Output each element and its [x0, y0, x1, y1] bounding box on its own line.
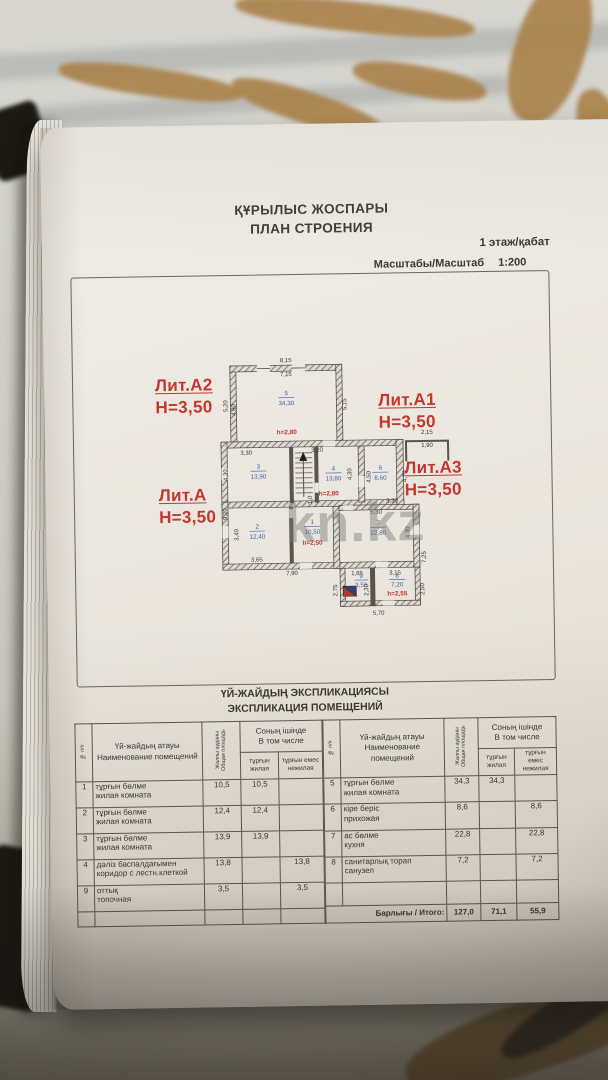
- table-row: 8 санитарлық торапсанузел 7,27,2: [325, 853, 558, 883]
- dim-label: 4,30: [223, 469, 229, 481]
- room-number: 6: [379, 465, 383, 472]
- dim-label: 7,15: [280, 372, 292, 378]
- room-number: 4: [332, 465, 336, 472]
- room-number: 8: [395, 572, 399, 579]
- height-label: h=2,80: [277, 429, 298, 436]
- room-area: 7,20: [391, 581, 404, 588]
- col-header-total: Жалпы ауданыОбщая площадь: [202, 721, 241, 780]
- room-area: 34,30: [278, 400, 294, 407]
- explication-title: ҮЙ-ЖАЙДЫҢ ЭКСПЛИКАЦИЯСЫ ЭКСПЛИКАЦИЯ ПОМЕ…: [135, 683, 475, 717]
- watermark: kn.kz: [235, 490, 476, 556]
- dim-label: 4,30: [347, 468, 353, 480]
- table-row: 5 тұрғын бөлмежилая комната 34,334,3: [324, 775, 557, 805]
- dim-label: 4,50: [366, 470, 372, 482]
- table-row: 7 ас бөлмекухня 22,822,8: [325, 827, 558, 857]
- table-row: 2 тұрғын бөлмежилая комната 12,412,4: [76, 804, 323, 834]
- scale-value: 1:200: [498, 256, 544, 269]
- explication-table: № п/п Үй-жайдың атауыНаименование помеще…: [74, 716, 559, 928]
- dim-label: 5,20: [223, 400, 229, 412]
- explication-table-right: № п/п Үй-жайдың атауыНаименование помеще…: [322, 716, 559, 924]
- height-label: h=2,55: [387, 590, 408, 597]
- col-header-num: № п/п: [75, 724, 93, 782]
- dim-label: 1,90: [421, 443, 433, 449]
- dim-label: 5,70: [373, 611, 385, 617]
- floor-label: 1 этаж/қабат: [392, 236, 550, 250]
- dim-label: 8,15: [280, 358, 292, 364]
- total-label: Барлығы / Итого:: [326, 904, 447, 923]
- col-header-including: Соның ішіндеВ том числе: [478, 716, 556, 748]
- dim-label: 2,50: [420, 582, 426, 594]
- document-page: ҚҰРЫЛЫС ЖОСПАРЫ ПЛАН СТРОЕНИЯ 1 этаж/қаб…: [40, 119, 608, 1010]
- dim-label: 4,80: [231, 403, 237, 415]
- col-header-name: Үй-жайдың атауыНаименование помещений: [340, 718, 445, 778]
- room-area: 13,80: [326, 475, 342, 482]
- room-area: 3,50: [355, 582, 368, 589]
- col-header-living: тұрғынжилая: [240, 752, 278, 780]
- table-total-row: Барлығы / Итого: 127,0 71,1 55,9: [326, 902, 559, 923]
- room-number: 9: [359, 573, 363, 580]
- photo-background: ҚҰРЫЛЫС ЖОСПАРЫ ПЛАН СТРОЕНИЯ 1 этаж/қаб…: [0, 0, 608, 1080]
- col-header-living: тұрғынжилая: [478, 748, 514, 776]
- col-header-nonliving: тұрғын емеснежилая: [514, 748, 556, 776]
- lit-label-a2: Лит.А2 Н=3,50: [155, 374, 213, 419]
- total-nonliving: 55,9: [517, 902, 559, 920]
- explication-table-left: № п/п Үй-жайдың атауыНаименование помеще…: [74, 720, 325, 928]
- table-row: 1 тұрғын бөлмежилая комната 10,510,5: [76, 778, 323, 808]
- dim-label: 7,90: [286, 571, 298, 577]
- col-header-nonliving: тұрғын емеснежилая: [278, 751, 322, 779]
- dim-label: 3,65: [251, 558, 263, 564]
- document-title: ҚҰРЫЛЫС ЖОСПАРЫ ПЛАН СТРОЕНИЯ: [111, 197, 512, 241]
- dim-label: 5,15: [342, 398, 348, 410]
- table-row: 4 дәліз баспалдағыменкоридор с лестн.кле…: [77, 856, 324, 886]
- table-row: 9 оттықтопочная 3,53,5: [77, 882, 324, 912]
- dim-label: 9,20: [223, 508, 229, 520]
- col-header-num: № п/п: [323, 720, 341, 779]
- dim-label: 2,75: [333, 584, 339, 596]
- room-number: 5: [284, 390, 288, 397]
- lit-label-a1: Лит.А1 Н=3,50: [378, 389, 436, 434]
- room-area: 8,60: [374, 475, 387, 482]
- lit-label-a: Лит.А Н=3,50: [159, 484, 217, 529]
- room-area: 13,90: [251, 473, 267, 480]
- table-row: 3 тұрғын бөлмежилая комната 13,913,9: [77, 830, 324, 860]
- room-number: 3: [257, 464, 261, 471]
- dim-label: 3,30: [240, 451, 252, 457]
- total-living: 71,1: [481, 903, 517, 921]
- plan-frame: 8,15 7,15 5,20 4,80 5,15 2,15 1,90 3,30 …: [70, 270, 555, 687]
- col-header-name: Үй-жайдың атауыНаименование помещений: [92, 722, 203, 782]
- scale-label: Масштабы/Масштаб: [328, 257, 484, 271]
- col-header-including: Соның ішіндеВ том числе: [240, 720, 322, 752]
- floor-plan: 8,15 7,15 5,20 4,80 5,15 2,15 1,90 3,30 …: [71, 271, 554, 686]
- table-row: 6 кіре берісприхожая 8,68,6: [324, 801, 557, 831]
- col-header-total: Жалпы ауданыОбщая площадь: [444, 718, 479, 777]
- dim-label: 3,20: [311, 448, 323, 454]
- total-area: 127,0: [447, 904, 481, 922]
- table-row-empty: [78, 908, 325, 927]
